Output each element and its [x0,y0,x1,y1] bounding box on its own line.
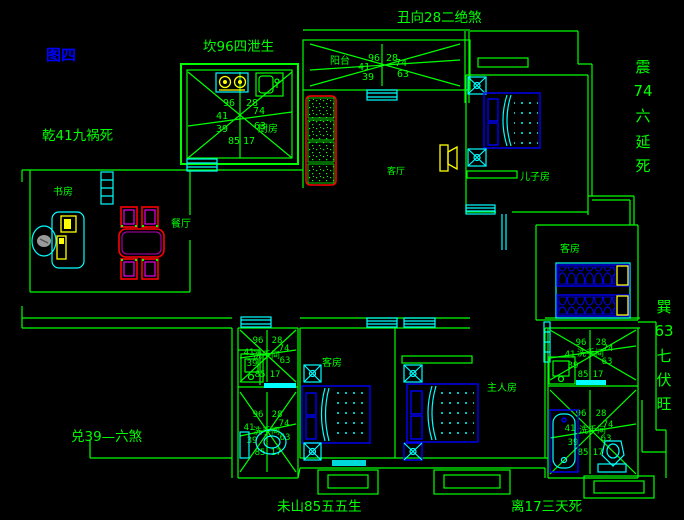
room-label-bath: 洗手间 [253,425,280,437]
room-label-guest-east: 客房 [560,242,580,255]
porch-steps [318,470,654,498]
annotation-char: 七 [656,347,671,365]
star-number: 96 [223,98,235,109]
annotation-kitchen-outside: 坎96四泄生 [203,39,274,55]
threshold-bath-east [576,380,606,385]
star-number: 96 [253,336,264,346]
annotation-char: 延 [635,133,650,151]
plant-box-row [306,96,336,185]
star-number: 96 [576,338,587,348]
star-number: 41 [565,350,576,360]
floorplan-drawing: 96 28 41 74 39 63 85 17 96 28 41 74 39 6… [0,0,684,520]
nightstand-icon [468,149,486,166]
star-number: 41 [216,111,228,122]
sink-icon [256,73,283,96]
annotation-top-center: 丑向28二绝煞 [397,10,482,26]
bed-son [484,93,540,148]
annotation-char: 巽 [656,298,671,316]
twin-beds-guest-east [556,263,630,318]
star-number: 17 [593,448,604,458]
shelf-son-room [467,171,517,178]
shelf-master [402,356,472,363]
room-label-bath: 洗手间 [253,349,280,361]
annotation-char: 伏 [656,371,671,389]
stove-icon [216,73,248,92]
porch-step [434,470,510,494]
star-number: 17 [593,370,604,380]
annotation-south-right: 离17三天死 [511,498,582,515]
room-label-kitchen: 厨房 [258,122,278,135]
entry-step [478,58,528,67]
room-label-guest-south: 客房 [322,356,342,369]
nightstand-icon [468,77,486,94]
star-number: 63 [280,356,291,366]
annotation-south-left: 未山85五五生 [277,499,362,515]
porch-step [584,476,654,498]
threshold-bath-west [264,383,296,388]
pillow [617,296,628,315]
annotation-east-lower: 巽 63 七 伏 旺 [654,298,673,413]
nightstand-icon [404,365,422,382]
annotation-char: 74 [633,82,652,100]
window-balcony [367,90,397,100]
bed-master [407,384,478,442]
dining-chair [121,207,137,227]
southwest-wall [90,440,300,478]
room-label-bath: 洗手间 [579,424,606,436]
window-guest-south [367,318,397,327]
dining-table [119,229,164,257]
star-number: 74 [395,58,407,69]
desk-computer-icon [57,216,76,259]
room-label-bath: 洗手间 [577,347,604,359]
star-number: 74 [279,344,290,354]
dining-chair [142,259,158,279]
star-number: 39 [216,124,228,135]
star-number: 28 [596,409,607,419]
annotation-char: 死 [635,157,650,175]
threshold-south [332,460,366,466]
room-label-master: 主人房 [487,381,517,394]
star-number: 17 [243,136,255,147]
star-number: 17 [270,370,281,380]
cad-floorplan-canvas: 96 28 41 74 39 63 85 17 96 28 41 74 39 6… [0,0,684,520]
annotation-char: 震 [635,58,650,76]
star-number: 85 [578,448,589,458]
door-son-room [502,214,506,250]
nightstand-icon [304,365,321,382]
room-label-dining: 餐厅 [171,217,191,230]
star-number: 41 [565,424,576,434]
annotation-char: 63 [654,322,673,340]
west-long-wall [22,306,232,328]
room-label-living: 客厅 [387,165,405,177]
star-number: 63 [397,69,409,80]
star-number: 85 [228,136,240,147]
figure-label: 图四 [46,46,76,64]
annotation-east-upper: 震 74 六 延 死 [633,58,652,175]
star-number: 74 [603,344,614,354]
room-label-balcony: 阳台 [330,54,350,67]
porch-step [318,470,378,494]
dining-chair [142,207,158,227]
annotation-northwest: 乾41九祸死 [42,128,113,144]
pillow [617,266,628,285]
dining-chair [121,259,137,279]
bed-guest-south [302,386,370,443]
window-west-wall [241,317,271,327]
room-label-son-room: 儿子房 [520,170,550,183]
star-number: 39 [362,72,374,83]
annotation-char: 六 [635,107,650,125]
room-label-study: 书房 [53,185,73,198]
star-number: 74 [279,419,290,429]
star-number: 74 [253,106,265,117]
star-number: 96 [253,410,264,420]
tv-icon [440,145,457,171]
annotation-west: 兑39—六煞 [71,429,143,445]
star-number: 39 [568,438,579,448]
window-son-room [466,205,495,214]
annotation-char: 旺 [656,395,671,413]
star-number: 85 [578,370,589,380]
right-step-wall [588,196,634,225]
window-hall-column [101,172,113,204]
window-master [404,318,435,327]
